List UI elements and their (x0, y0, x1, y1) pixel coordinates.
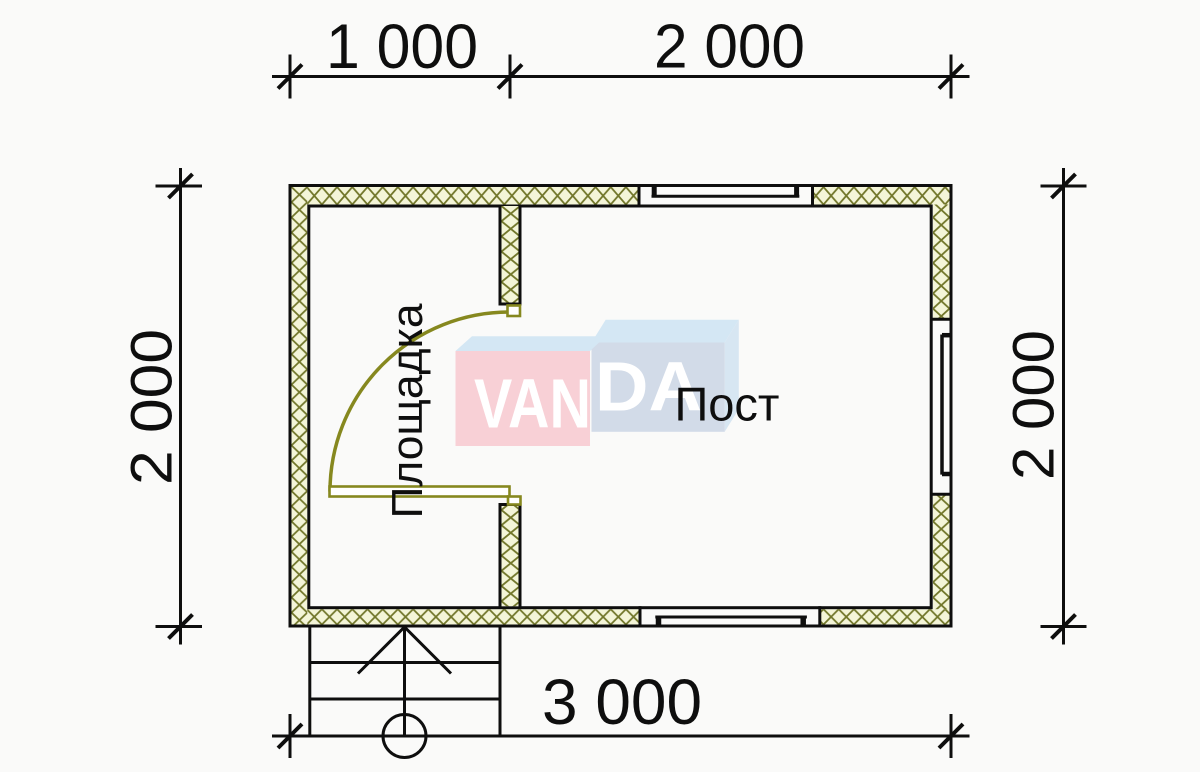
svg-text:2 000: 2 000 (654, 13, 805, 82)
svg-text:Пост: Пост (675, 378, 780, 431)
svg-text:Площадка: Площадка (383, 303, 432, 519)
svg-text:3 000: 3 000 (542, 666, 702, 738)
svg-text:2 000: 2 000 (1002, 330, 1067, 480)
svg-text:2 000: 2 000 (120, 329, 185, 485)
svg-text:1 000: 1 000 (326, 12, 478, 82)
svg-text:VAN: VAN (474, 365, 591, 443)
